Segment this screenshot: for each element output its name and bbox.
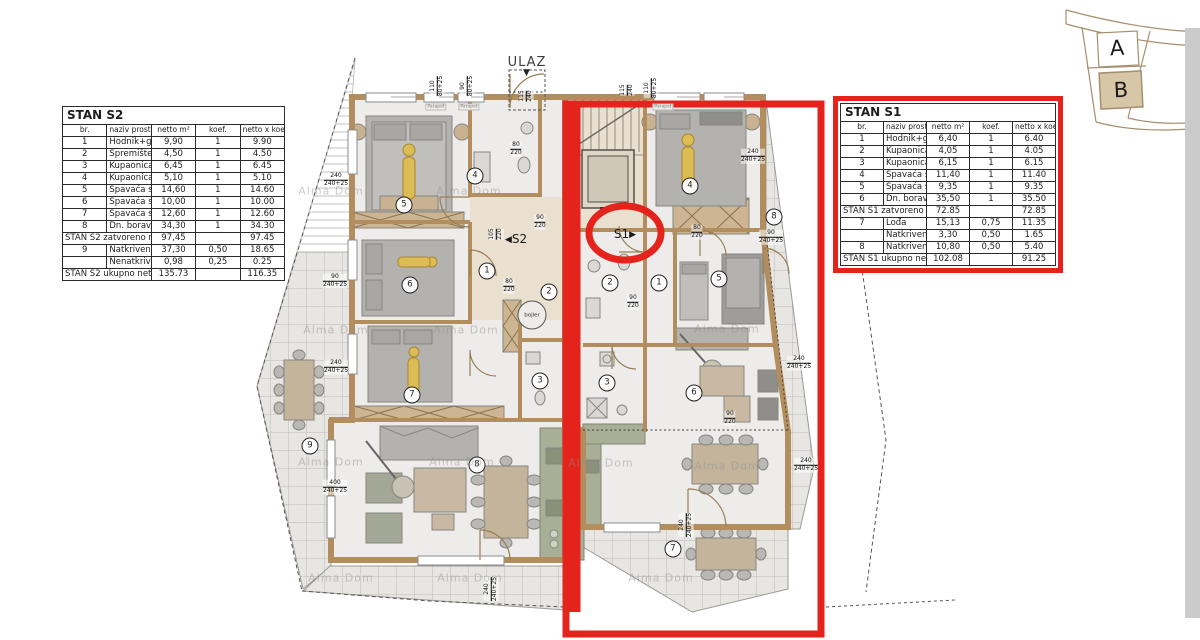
column-header: netto m² [927, 122, 970, 134]
table-stan-s1-highlighted: STAN S1br.naziv prostorijenetto m²koef.n… [833, 96, 1063, 273]
dimension-label: 90220 [534, 215, 545, 230]
table-row: 4Kupaonica5,1015.10 [63, 173, 285, 185]
table-row: STAN S2 ukupno neto:135.73116.35 [63, 269, 285, 281]
dimension-label: 240240+25 [324, 360, 348, 375]
room-number-s1-2: 2 [602, 275, 619, 292]
page-edge-strip [1185, 28, 1200, 618]
room-number-s1-6: 6 [686, 385, 703, 402]
boiler-label: bojler [518, 301, 547, 330]
watermark: Alma Dom [298, 185, 363, 198]
table-row: 6Spavaća soba10,00110.00 [63, 197, 285, 209]
table-row: 7Lođa15,130,7511.35 [841, 218, 1056, 230]
room-number-s1-4: 4 [682, 178, 699, 195]
dimension-label: 9080+25 [460, 76, 475, 96]
column-header: br. [841, 122, 884, 134]
room-number-s2-7: 7 [404, 387, 421, 404]
dimension-label: 90240+25 [323, 274, 347, 289]
dimension-label: 11080+25 [430, 76, 445, 96]
column-header: netto x koef. m² [1013, 122, 1056, 134]
column-header: naziv prostorije [107, 125, 151, 137]
arrow-right-icon: ▶ [629, 230, 636, 240]
room-number-s2-3: 3 [532, 373, 549, 390]
site-building-b-label: B [1113, 78, 1129, 103]
column-header: koef. [196, 125, 240, 137]
room-number-s2-2: 2 [541, 284, 558, 301]
dimension-label: 11080+25 [644, 78, 659, 98]
room-number-s1-3: 3 [599, 375, 616, 392]
dimension-label: 115240 [519, 90, 534, 101]
table-title: STAN S1 [841, 104, 1056, 122]
room-number-s2-6: 6 [402, 277, 419, 294]
dimension-label: 105220 [489, 228, 504, 239]
table-title: STAN S2 [63, 107, 285, 125]
table-row: STAN S1 zatvoreno neto:72.8572.85 [841, 206, 1056, 218]
room-number-s1-1: 1 [651, 275, 668, 292]
dimension-label: 90220 [627, 295, 638, 310]
dimension-label: 240240+25 [794, 458, 818, 473]
dimension-label: 240240+25 [741, 149, 765, 164]
watermark: Alma Dom [628, 572, 693, 585]
parapet-label: Parapet [425, 104, 446, 111]
dimension-label: 80220 [510, 142, 521, 157]
room-number-s2-9: 9 [302, 438, 319, 455]
dimension-label: 90240+25 [759, 230, 783, 245]
watermark: Alma Dom [433, 324, 498, 337]
down-arrow-icon: ▼ [508, 70, 547, 76]
unit-label-s2: ◀S2 [505, 232, 527, 246]
table-row: 2Spremište4,5014.50 [63, 149, 285, 161]
column-header: naziv prostorije [884, 122, 927, 134]
dimension-label: 240240+25 [679, 513, 694, 537]
parapet-label: Parapet [652, 104, 673, 111]
room-number-s2-4: 4 [467, 168, 484, 185]
parapet-label: Parapet [458, 104, 479, 111]
watermark: Alma Dom [429, 456, 494, 469]
room-number-s1-7: 7 [665, 541, 682, 558]
watermark: Alma Dom [436, 185, 501, 198]
room-number-s2-5: 5 [396, 197, 413, 214]
table-row: 2Kupaonica4,0514.05 [841, 146, 1056, 158]
room-number-s1-8: 8 [766, 209, 783, 226]
column-header: netto x koef. m² [240, 125, 284, 137]
watermark: Alma Dom [308, 572, 373, 585]
watermark: Alma Dom [694, 460, 759, 473]
table-row: 8Dn. boravak+kuh.+blag.34,30134.30 [63, 221, 285, 233]
table-row: 7Spavaća soba12,60112.60 [63, 209, 285, 221]
column-header: br. [63, 125, 107, 137]
table-row: Nenatkrivena terasa0,980,250.25 [63, 257, 285, 269]
table-row: 5Spavaća soba9,3519.35 [841, 182, 1056, 194]
table-row: 1Hodnik+garderoba6,4016.40 [841, 134, 1056, 146]
watermark: Alma Dom [694, 323, 759, 336]
table-stan-s2: STAN S2br.naziv prostorijenetto m²koef.n… [62, 106, 285, 281]
column-header: netto m² [151, 125, 195, 137]
unit-label-s1: S1▶ [614, 227, 636, 241]
dimension-label: 400240+25 [323, 480, 347, 495]
arrow-left-icon: ◀ [505, 235, 512, 245]
table-row: 1Hodnik+garderoba9,9019.90 [63, 137, 285, 149]
dimension-label: 90220 [724, 411, 735, 426]
room-number-s2-1: 1 [479, 263, 496, 280]
dimension-label: 80220 [503, 279, 514, 294]
table-row: Natkrivena terasa3,300,501.65 [841, 230, 1056, 242]
room-number-s1-5: 5 [711, 271, 728, 288]
dimension-label: 80220 [691, 225, 702, 240]
dimension-label: 115240 [620, 84, 635, 95]
table-row: STAN S1 ukupno neto:102.0891.25 [841, 254, 1056, 266]
table-row: 9Natkrivena terasa37,300,5018.65 [63, 245, 285, 257]
watermark: Alma Dom [568, 457, 633, 470]
table-row: 4Spavaća soba11,40111.40 [841, 170, 1056, 182]
site-building-a-label: A [1109, 36, 1125, 61]
table-row: 8Natkrivena terasa10,800,505.40 [841, 242, 1056, 254]
floor-plan-page: 1234567891234567811080+259080+2511524011… [0, 0, 1200, 640]
table-row: 5Spavaća soba14,60114.60 [63, 185, 285, 197]
entrance-label: ULAZ ▼ [508, 55, 547, 76]
table-row: 3Kupaonica6,4516.45 [63, 161, 285, 173]
watermark: Alma Dom [298, 456, 363, 469]
table-row: 6Dn. boravak+kuh.+blag.35,50135.50 [841, 194, 1056, 206]
dimension-label: 240240+25 [787, 356, 811, 371]
table-row: 3Kupaonica6,1516.15 [841, 158, 1056, 170]
watermark: Alma Dom [303, 324, 368, 337]
table-row: STAN S2 zatvoreno neto:97,4597.45 [63, 233, 285, 245]
watermark: Alma Dom [437, 572, 502, 585]
column-header: koef. [970, 122, 1013, 134]
